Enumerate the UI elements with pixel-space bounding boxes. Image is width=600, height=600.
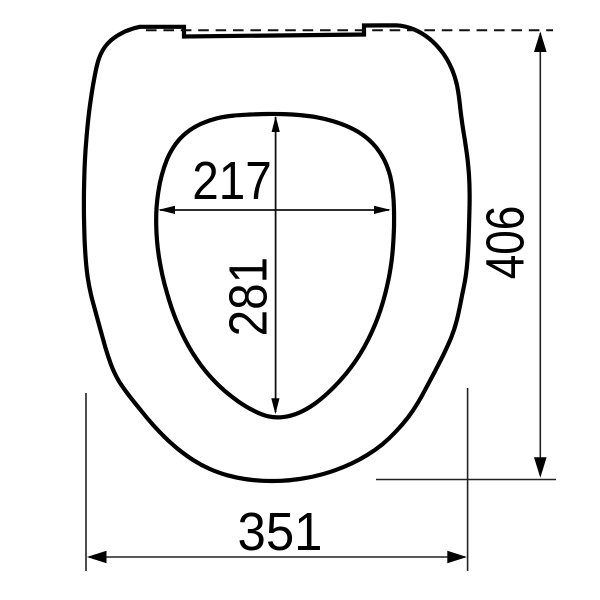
svg-text:406: 406 [476, 206, 536, 280]
svg-text:351: 351 [238, 502, 323, 562]
svg-text:217: 217 [192, 151, 272, 211]
svg-text:281: 281 [219, 257, 279, 337]
